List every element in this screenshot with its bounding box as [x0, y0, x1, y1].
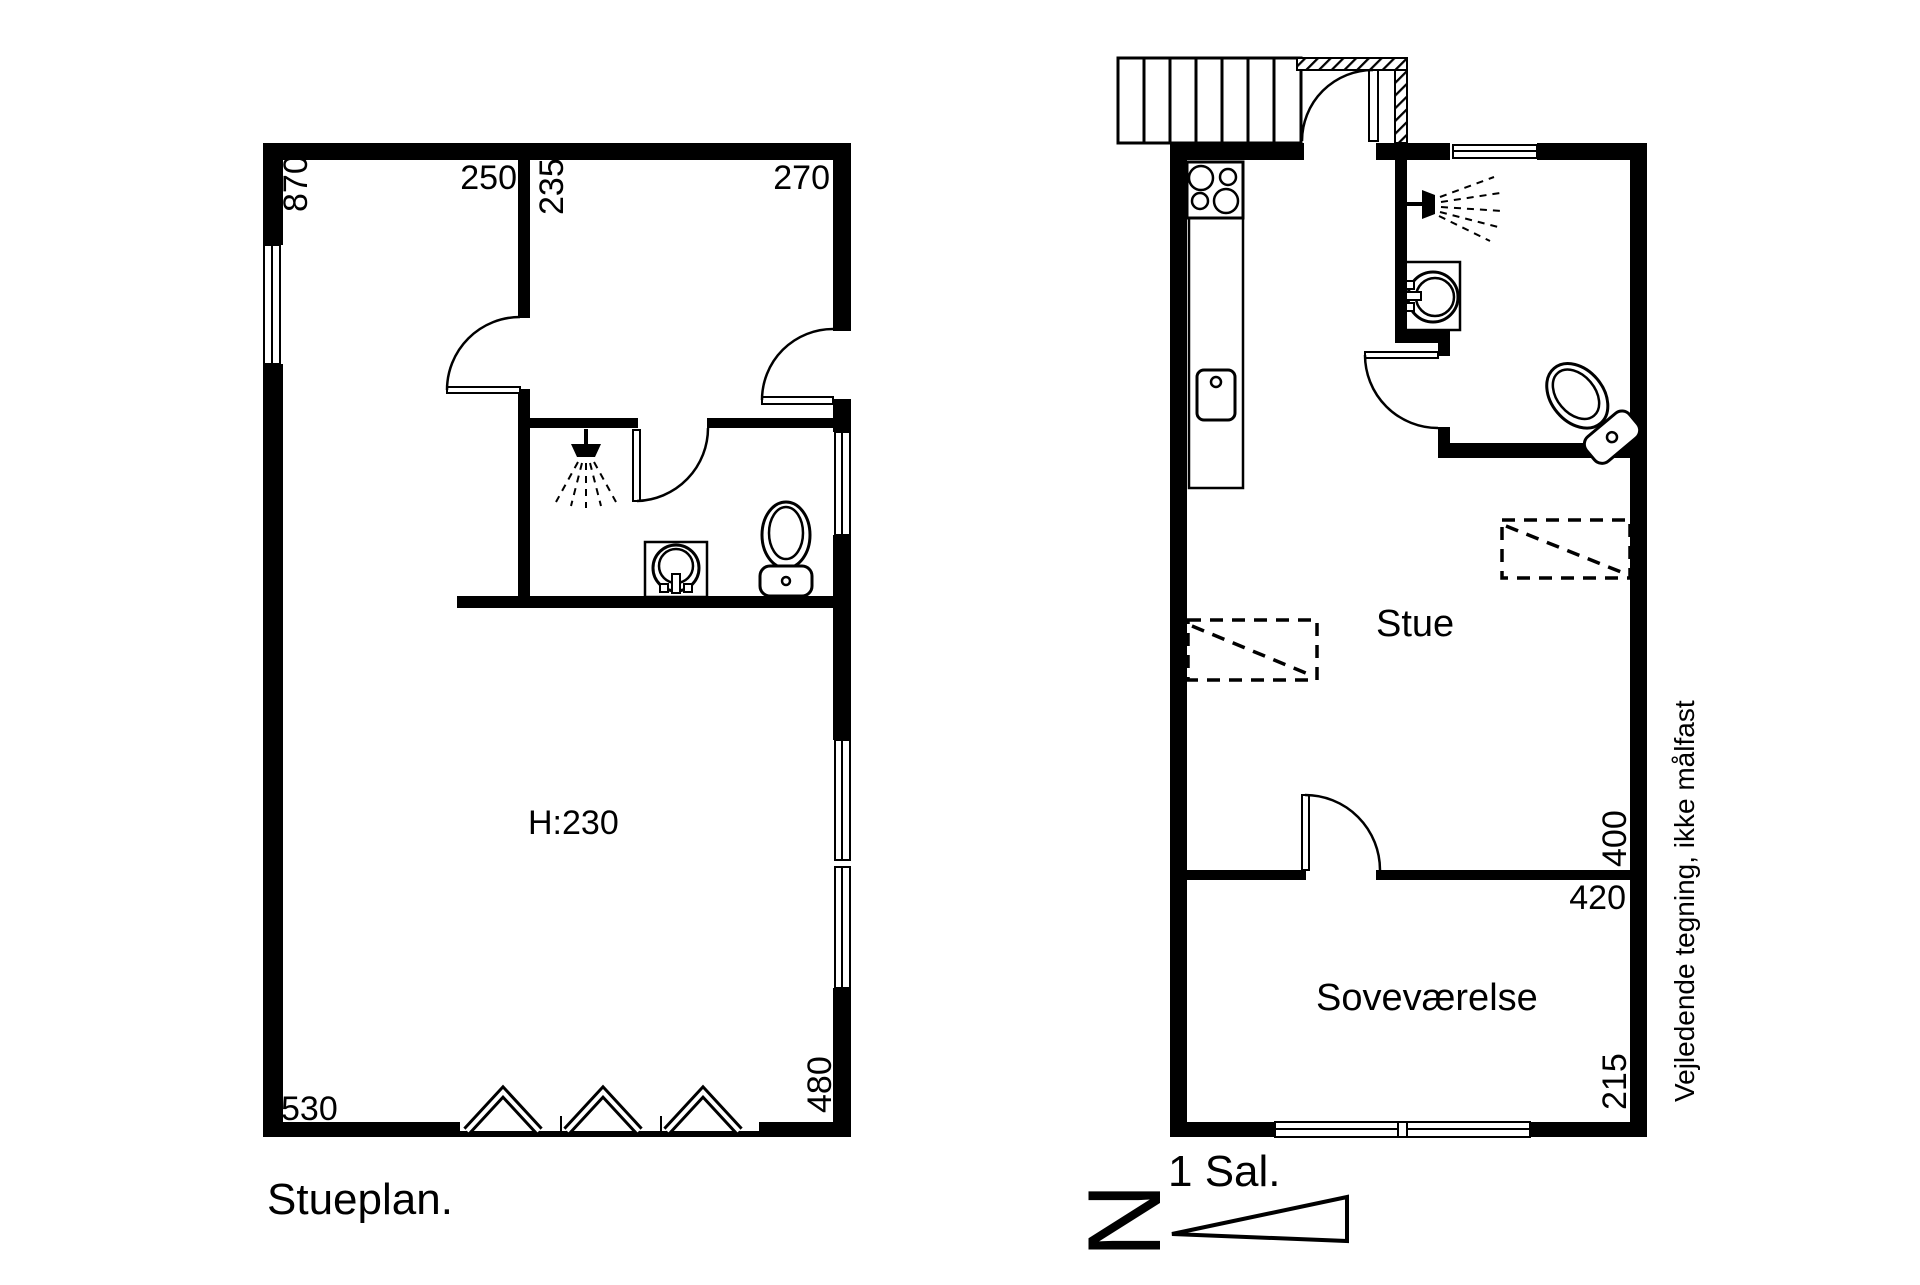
skylight-dashed — [1188, 620, 1317, 680]
sink-icon — [645, 542, 707, 597]
floor-plan-page: 870 250 235 270 H:230 530 480 Stueplan. — [0, 0, 1920, 1280]
door-swing — [447, 317, 520, 393]
door-swing — [1302, 795, 1380, 870]
stueplan-title: Stueplan. — [267, 1175, 453, 1224]
skylight-dashed — [1502, 520, 1630, 578]
room-label-stue: Stue — [1376, 603, 1454, 645]
dim-bedroom-top-width: 420 — [1569, 879, 1626, 917]
dim-bottom-right-height: 480 — [801, 1056, 839, 1113]
toilet-icon — [760, 502, 812, 596]
dim-inner-room-height: 235 — [533, 158, 571, 215]
first-floor-group: Stue Soveværelse 400 420 215 1 Sal. — [1118, 58, 1647, 1196]
washbasin-icon — [1405, 262, 1460, 330]
dim-top-right-width: 270 — [773, 159, 830, 197]
dim-bedroom-right-height: 215 — [1596, 1053, 1634, 1110]
window — [835, 867, 850, 988]
disclaimer-note: Vejledende tegning, ikke målfast — [1669, 700, 1700, 1102]
stueplan-walls — [263, 143, 851, 1137]
window — [264, 245, 280, 364]
floor-plan-drawing: 870 250 235 270 H:230 530 480 Stueplan. — [0, 0, 1920, 1280]
shower-icon — [556, 429, 616, 508]
stove-icon — [1187, 162, 1243, 218]
dim-living-height: 400 — [1596, 810, 1634, 867]
stueplan-group: 870 250 235 270 H:230 530 480 Stueplan. — [263, 143, 851, 1224]
door-swing — [1365, 352, 1438, 428]
door-swing — [633, 428, 708, 501]
door-swing — [762, 329, 833, 404]
north-arrow-triangle — [1172, 1197, 1347, 1241]
window — [835, 432, 850, 535]
room-label-sovevaerelse: Soveværelse — [1316, 977, 1538, 1019]
dim-left-height: 870 — [277, 155, 315, 212]
window — [835, 740, 850, 860]
dim-bottom-left-width: 530 — [281, 1090, 338, 1128]
door-swing — [1302, 70, 1378, 141]
stairs — [1118, 58, 1301, 143]
dim-top-left-width: 250 — [460, 159, 517, 197]
shower-icon — [1407, 177, 1502, 241]
first-floor-title: 1 Sal. — [1168, 1147, 1281, 1196]
folding-door — [460, 1092, 759, 1137]
window — [1453, 145, 1537, 158]
north-letter: N — [1067, 1183, 1183, 1258]
ceiling-height-label: H:230 — [528, 804, 619, 842]
window — [1275, 1122, 1530, 1137]
kitchen-sink-icon — [1197, 370, 1235, 420]
